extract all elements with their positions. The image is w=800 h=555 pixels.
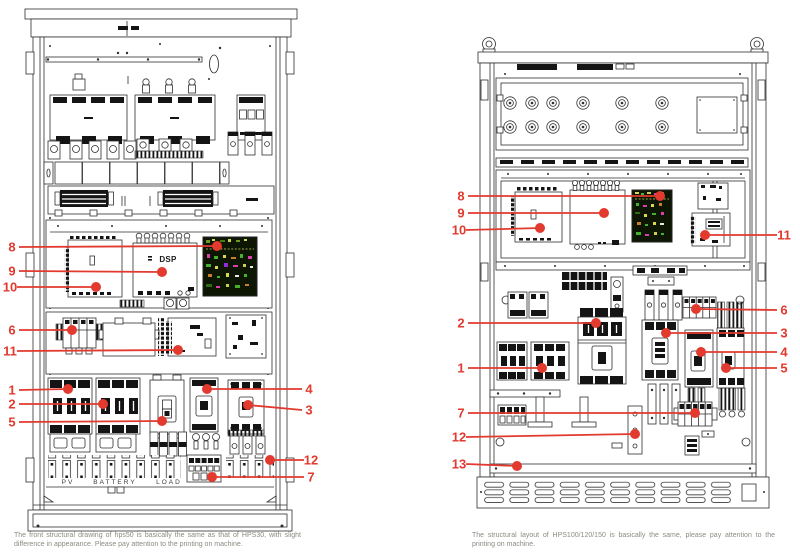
dsp-board: DSP xyxy=(133,233,197,297)
cable-slot xyxy=(210,55,219,73)
callout-dot xyxy=(700,230,710,240)
right-aux-board xyxy=(698,183,728,209)
callout-number: 7 xyxy=(307,470,314,485)
pv-label: PV xyxy=(62,479,75,486)
battery-label: BATTERY xyxy=(93,479,136,486)
callout-number: 8 xyxy=(8,240,15,255)
callout-number: 10 xyxy=(3,280,17,295)
callout-dot xyxy=(98,399,108,409)
left-cabinet: DSP xyxy=(3,9,318,531)
left-figure-caption: The front structural drawing of hps50 is… xyxy=(14,531,301,549)
callout-number: 4 xyxy=(780,345,788,360)
right-cabinet: 89101162314571213 xyxy=(452,38,791,509)
left-comb-block xyxy=(498,405,526,425)
callout-dot xyxy=(265,455,275,465)
right-figure-caption: The structural layout of HPS100/120/150 … xyxy=(472,531,775,549)
callout-dot xyxy=(721,363,731,373)
callout-number: 12 xyxy=(452,430,466,445)
callout-dot xyxy=(691,304,701,314)
callout-dot xyxy=(599,208,609,218)
callout-number: 13 xyxy=(452,457,466,472)
callout-number: 6 xyxy=(780,303,787,318)
callout-number: 1 xyxy=(457,361,464,376)
callout-dot xyxy=(655,191,665,201)
callout-dot xyxy=(690,408,700,418)
callout-number: 3 xyxy=(305,403,312,418)
callout-dot xyxy=(63,384,73,394)
bottom-rail-13 xyxy=(490,464,756,473)
power-module-left xyxy=(50,95,127,144)
callout-number: 11 xyxy=(777,228,791,243)
vent-grille xyxy=(477,477,769,508)
breakers-1 xyxy=(497,342,569,380)
right-top-cap xyxy=(478,52,768,63)
callout-dot xyxy=(537,363,547,373)
structure-drawings-svg: DSP xyxy=(0,0,800,555)
sensor-column xyxy=(611,277,623,312)
callout-number: 7 xyxy=(457,406,464,421)
breaker-5 xyxy=(717,302,745,417)
breaker-4 xyxy=(685,330,713,387)
breaker-center xyxy=(150,375,184,438)
dsp-label: DSP xyxy=(159,255,177,264)
control-compartment: DSP xyxy=(46,220,272,309)
output-terminal-tabs xyxy=(48,455,274,478)
callout-number: 12 xyxy=(304,453,318,468)
lug-blocks xyxy=(50,430,265,456)
display-board xyxy=(690,213,730,246)
callout-number: 1 xyxy=(8,383,15,398)
callout-number: 5 xyxy=(8,415,15,430)
callout-dot xyxy=(91,282,101,292)
cable-gland-panel xyxy=(496,78,748,150)
callout-dot xyxy=(243,400,253,410)
callout-number: 2 xyxy=(8,397,15,412)
callout-number: 9 xyxy=(457,206,464,221)
callout-dot xyxy=(157,267,167,277)
aux-box xyxy=(226,315,266,358)
breaker-3 xyxy=(642,320,678,380)
lifting-eye-right xyxy=(751,38,764,55)
callout-dot xyxy=(173,345,183,355)
callout-number: 3 xyxy=(780,326,787,341)
breaker3-terminals xyxy=(645,290,682,320)
right-dsp-board xyxy=(570,180,625,249)
callout-dot xyxy=(212,241,222,251)
callout-dot xyxy=(696,347,706,357)
callout-dot xyxy=(512,461,522,471)
callout-dot xyxy=(591,318,601,328)
callout-dot xyxy=(661,328,671,338)
callout-number: 4 xyxy=(305,382,313,397)
middle-compartment xyxy=(46,312,272,374)
callout-number: 2 xyxy=(457,316,464,331)
vent-button xyxy=(742,484,756,501)
callout-dot xyxy=(157,416,167,426)
callout-number: 11 xyxy=(3,344,17,359)
right-control-pcb xyxy=(632,190,672,242)
load-label: LOAD xyxy=(156,479,182,486)
right-control-compartment xyxy=(496,170,750,262)
callout-dot xyxy=(630,429,640,439)
callout-dot xyxy=(207,472,217,482)
callout-number: 8 xyxy=(457,189,464,204)
callout-number: 6 xyxy=(8,323,15,338)
capacitor-panels xyxy=(44,162,229,184)
main-breaker-2 xyxy=(578,308,626,384)
divider-bar xyxy=(496,262,750,270)
callout-number: 9 xyxy=(8,264,15,279)
power-module-right xyxy=(135,95,215,144)
dash-rail xyxy=(496,158,748,167)
lifting-eye-left xyxy=(483,38,496,55)
callout-dot xyxy=(202,384,212,394)
callout-dot xyxy=(535,223,545,233)
manual-page: DSP xyxy=(0,0,800,555)
left-base xyxy=(28,510,292,531)
callout-dot xyxy=(67,325,77,335)
left-top-cap xyxy=(25,9,297,37)
callout-number: 5 xyxy=(780,361,787,376)
callout-number: 10 xyxy=(452,223,466,238)
